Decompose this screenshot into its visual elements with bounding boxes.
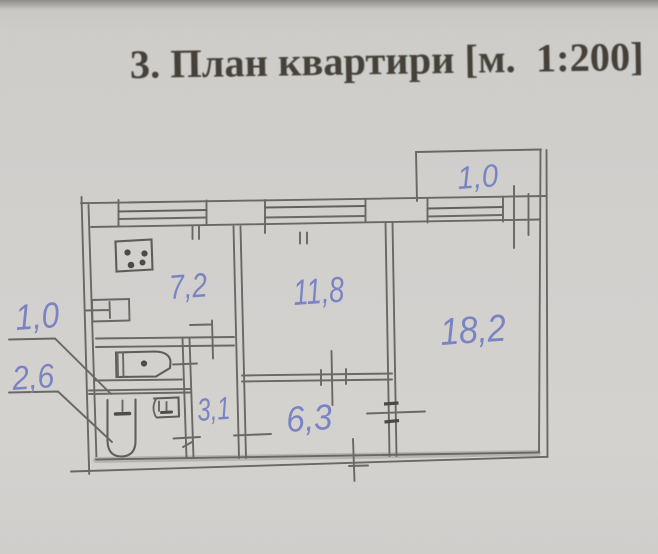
svg-text:7,2: 7,2 — [168, 266, 209, 307]
svg-text:18,2: 18,2 — [439, 307, 508, 354]
svg-text:1,0: 1,0 — [456, 157, 500, 196]
svg-text:1,0: 1,0 — [14, 294, 61, 338]
svg-text:2,6: 2,6 — [10, 357, 56, 398]
svg-text:3. План квартири [м. 1:200]: 3. План квартири [м. 1:200] — [129, 34, 644, 87]
svg-text:6,3: 6,3 — [285, 396, 334, 440]
svg-text:11,8: 11,8 — [292, 269, 346, 313]
svg-text:3,1: 3,1 — [196, 390, 231, 428]
